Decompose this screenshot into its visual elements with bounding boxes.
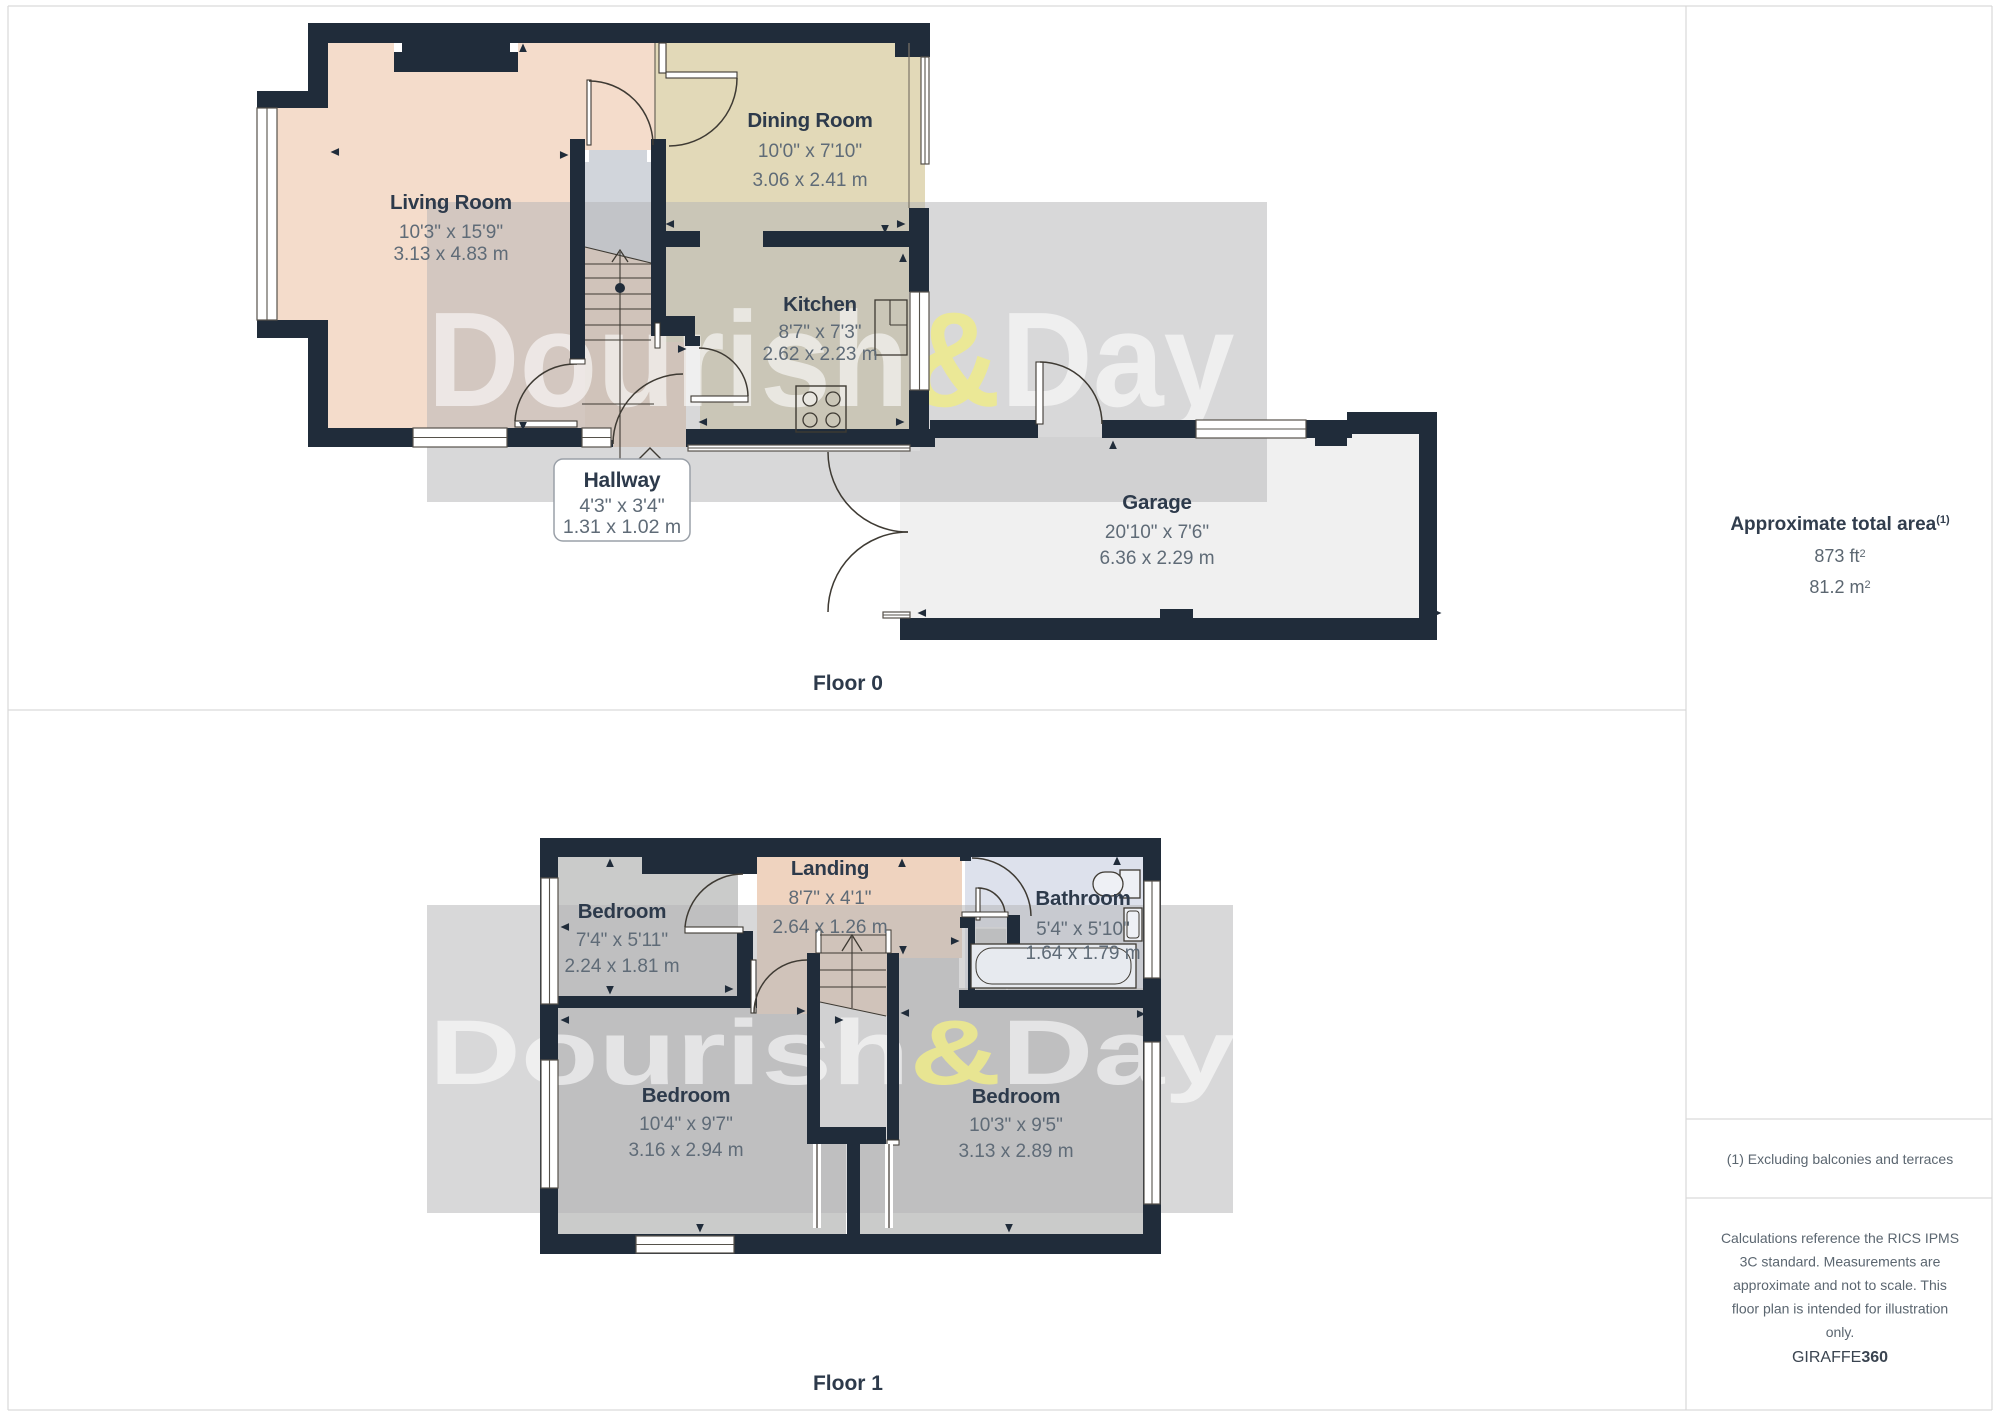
svg-text:8'7" x 4'1": 8'7" x 4'1" bbox=[788, 888, 871, 909]
svg-text:only.: only. bbox=[1826, 1324, 1855, 1340]
svg-text:Floor 1: Floor 1 bbox=[813, 1372, 883, 1395]
svg-text:approximate and not to scale.: approximate and not to scale. This bbox=[1733, 1277, 1947, 1293]
svg-text:3.16 x 2.94 m: 3.16 x 2.94 m bbox=[628, 1140, 743, 1161]
svg-text:Approximate total area(1): Approximate total area(1) bbox=[1730, 514, 1950, 535]
svg-text:1.64 x 1.79 m: 1.64 x 1.79 m bbox=[1025, 943, 1140, 964]
svg-text:81.2 m2: 81.2 m2 bbox=[1809, 577, 1870, 597]
svg-text:Kitchen: Kitchen bbox=[783, 293, 857, 316]
svg-text:Bedroom: Bedroom bbox=[578, 900, 667, 923]
svg-text:8'7" x 7'3": 8'7" x 7'3" bbox=[778, 322, 861, 343]
svg-text:Garage: Garage bbox=[1122, 491, 1191, 514]
svg-text:Landing: Landing bbox=[791, 857, 869, 880]
svg-text:20'10" x 7'6": 20'10" x 7'6" bbox=[1105, 522, 1209, 543]
svg-text:Bedroom: Bedroom bbox=[972, 1085, 1061, 1108]
svg-text:3.13 x 2.89 m: 3.13 x 2.89 m bbox=[958, 1141, 1073, 1162]
svg-text:2.24 x 1.81 m: 2.24 x 1.81 m bbox=[564, 956, 679, 977]
svg-text:2.64 x 1.26 m: 2.64 x 1.26 m bbox=[772, 917, 887, 938]
svg-text:10'4" x 9'7": 10'4" x 9'7" bbox=[639, 1114, 733, 1135]
svg-text:floor plan is intended for ill: floor plan is intended for illustration bbox=[1732, 1301, 1948, 1317]
svg-text:Dining Room: Dining Room bbox=[747, 109, 872, 132]
svg-text:4'3" x 3'4": 4'3" x 3'4" bbox=[579, 495, 664, 517]
svg-text:Bedroom: Bedroom bbox=[642, 1084, 731, 1107]
svg-text:10'0" x 7'10": 10'0" x 7'10" bbox=[758, 141, 862, 162]
svg-text:(1) Excluding balconies and te: (1) Excluding balconies and terraces bbox=[1727, 1151, 1953, 1167]
svg-text:1.31 x 1.02 m: 1.31 x 1.02 m bbox=[563, 516, 681, 538]
svg-text:3.06 x 2.41 m: 3.06 x 2.41 m bbox=[752, 170, 867, 191]
svg-text:Hallway: Hallway bbox=[584, 469, 661, 492]
svg-text:6.36 x 2.29 m: 6.36 x 2.29 m bbox=[1099, 548, 1214, 569]
svg-text:Bathroom: Bathroom bbox=[1035, 887, 1130, 910]
svg-text:5'4" x 5'10": 5'4" x 5'10" bbox=[1036, 919, 1130, 940]
svg-text:2.62 x 2.23 m: 2.62 x 2.23 m bbox=[762, 344, 877, 365]
svg-text:3C standard. Measurements are: 3C standard. Measurements are bbox=[1740, 1254, 1941, 1270]
svg-text:3.13 x 4.83 m: 3.13 x 4.83 m bbox=[393, 244, 508, 265]
svg-text:Floor 0: Floor 0 bbox=[813, 672, 883, 695]
svg-text:GIRAFFE360: GIRAFFE360 bbox=[1792, 1349, 1888, 1366]
svg-text:873 ft2: 873 ft2 bbox=[1814, 546, 1865, 566]
svg-text:Living Room: Living Room bbox=[390, 191, 512, 214]
svg-text:10'3" x 9'5": 10'3" x 9'5" bbox=[969, 1115, 1063, 1136]
svg-text:10'3" x 15'9": 10'3" x 15'9" bbox=[399, 222, 503, 243]
svg-text:Calculations reference the RIC: Calculations reference the RICS IPMS bbox=[1721, 1230, 1959, 1246]
svg-text:7'4" x 5'11": 7'4" x 5'11" bbox=[576, 930, 668, 951]
